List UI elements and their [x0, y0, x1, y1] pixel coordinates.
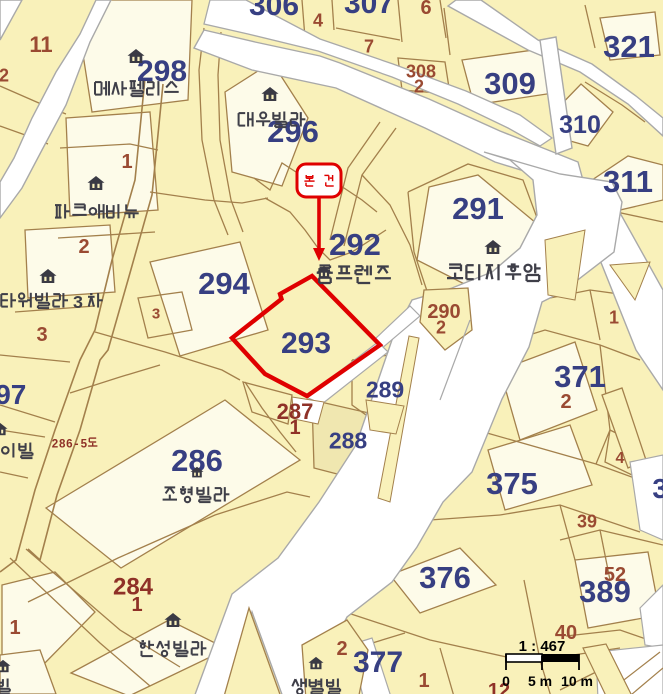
svg-text:291: 291 [452, 191, 504, 226]
svg-text:10 m: 10 m [561, 673, 593, 689]
svg-text:1 : 467: 1 : 467 [519, 638, 566, 655]
svg-text:306: 306 [249, 0, 299, 22]
svg-text:1: 1 [121, 151, 132, 173]
svg-text:52: 52 [604, 564, 626, 586]
svg-text:2: 2 [414, 77, 424, 97]
svg-text:4: 4 [313, 11, 323, 31]
svg-text:1: 1 [609, 308, 619, 328]
svg-text:376: 376 [419, 560, 471, 595]
svg-text:1: 1 [131, 594, 142, 616]
svg-text:0: 0 [502, 673, 510, 689]
svg-text:3: 3 [152, 305, 160, 322]
svg-text:297: 297 [0, 379, 26, 410]
svg-text:6: 6 [66, 438, 73, 451]
svg-text:2: 2 [78, 236, 89, 258]
svg-text:-: - [75, 438, 79, 451]
svg-text:309: 309 [484, 66, 536, 101]
svg-text:2: 2 [336, 638, 347, 660]
svg-text:289: 289 [366, 376, 404, 402]
svg-text:3: 3 [73, 292, 83, 312]
svg-text:294: 294 [198, 266, 250, 301]
svg-text:11: 11 [29, 32, 52, 57]
svg-text:37: 37 [652, 473, 663, 504]
svg-text:311: 311 [603, 164, 653, 199]
svg-text:2: 2 [560, 391, 571, 413]
svg-text:1: 1 [289, 417, 300, 439]
svg-text:5 m: 5 m [528, 673, 552, 689]
svg-text:3: 3 [36, 324, 47, 346]
svg-text:8: 8 [59, 438, 66, 451]
svg-text:375: 375 [486, 466, 538, 501]
svg-text:288: 288 [329, 427, 368, 453]
svg-text:2: 2 [0, 66, 9, 86]
svg-text:1: 1 [9, 617, 20, 639]
svg-text:310: 310 [559, 111, 601, 139]
svg-text:321: 321 [603, 29, 655, 64]
svg-text:5: 5 [81, 438, 88, 451]
svg-text:307: 307 [344, 0, 394, 20]
svg-text:2: 2 [52, 438, 58, 451]
svg-text:1: 1 [418, 670, 429, 692]
svg-text:4: 4 [616, 450, 625, 467]
svg-text:292: 292 [329, 227, 381, 262]
svg-text:2: 2 [436, 318, 446, 338]
svg-text:39: 39 [577, 512, 597, 532]
svg-text:293: 293 [281, 327, 331, 360]
svg-text:298: 298 [137, 55, 187, 88]
svg-text:6: 6 [420, 0, 431, 19]
svg-text:377: 377 [353, 646, 403, 679]
svg-text:7: 7 [364, 37, 374, 57]
svg-text:371: 371 [554, 359, 606, 394]
